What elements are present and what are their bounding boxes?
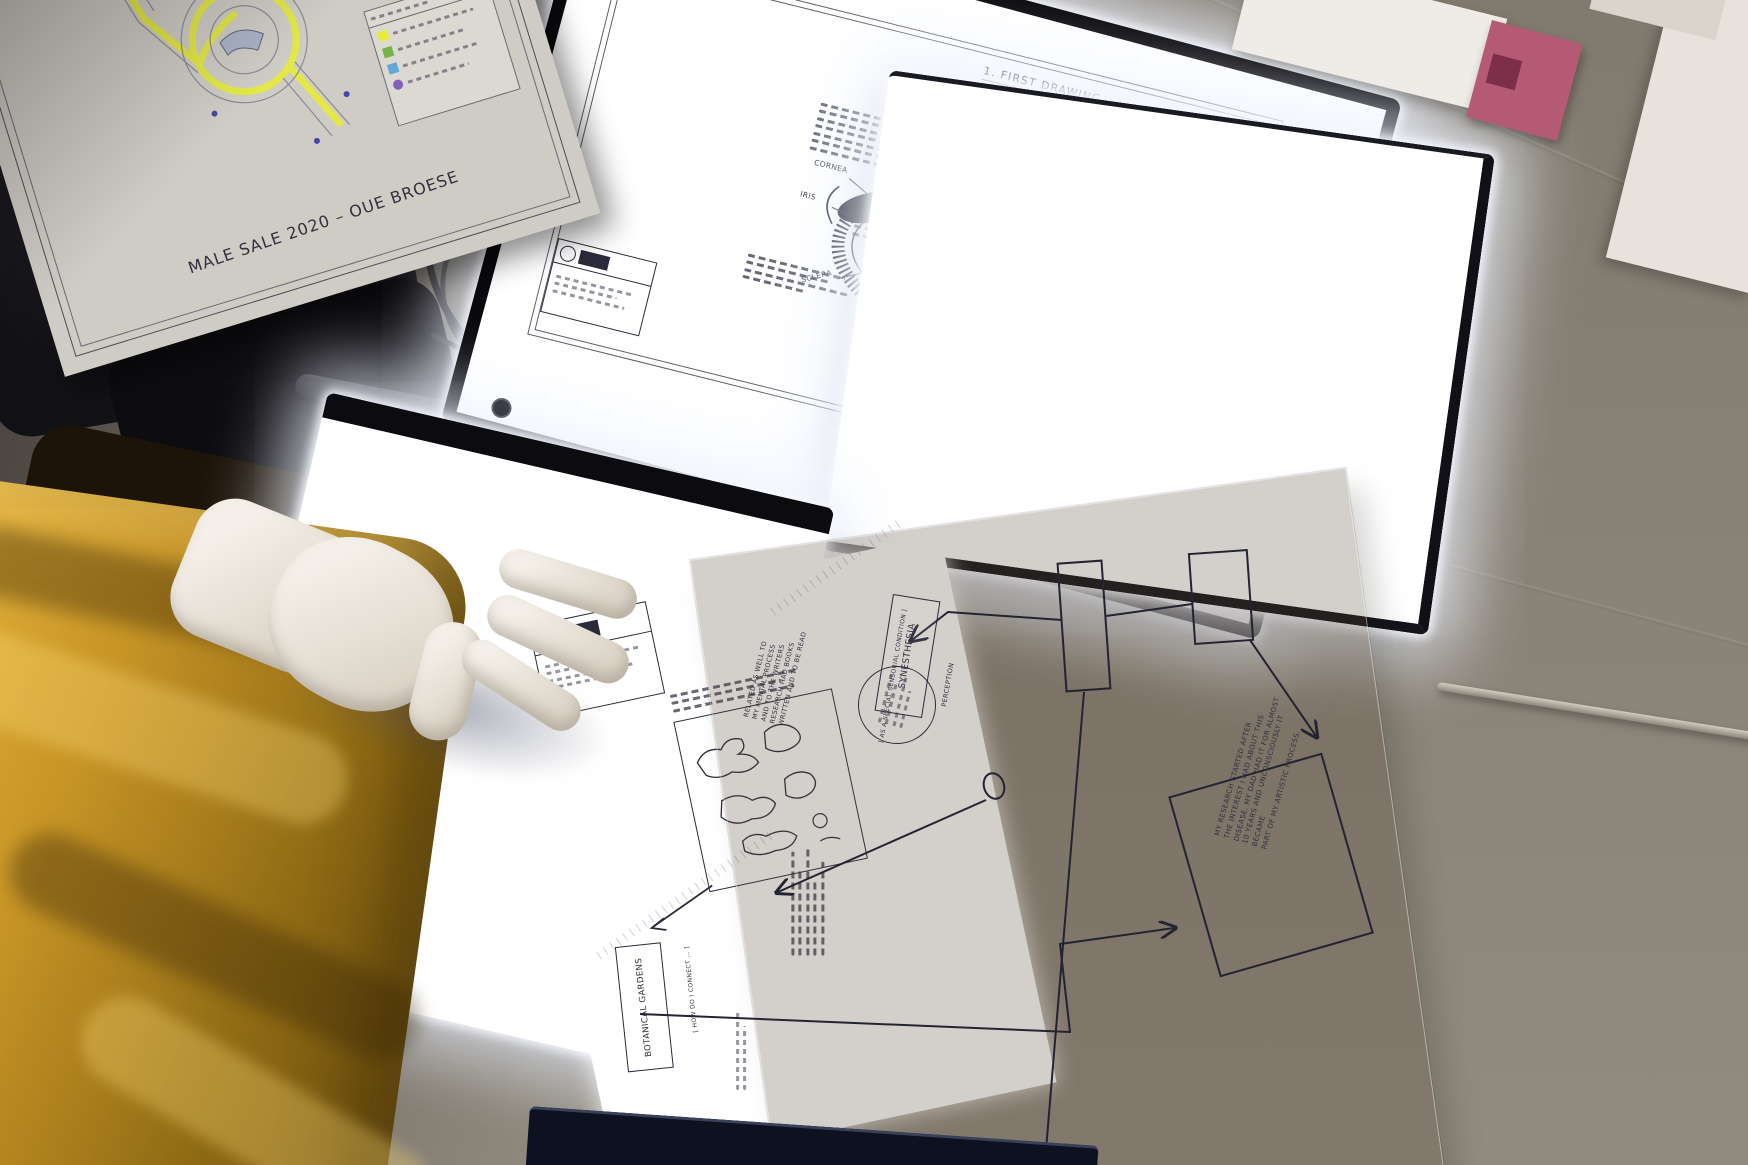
pink-card-mark — [1486, 53, 1523, 90]
idea-circle — [858, 666, 936, 744]
photo-scene: 1. FIRST DRAWING MACULAR DEGENERATION — [0, 0, 1748, 1165]
